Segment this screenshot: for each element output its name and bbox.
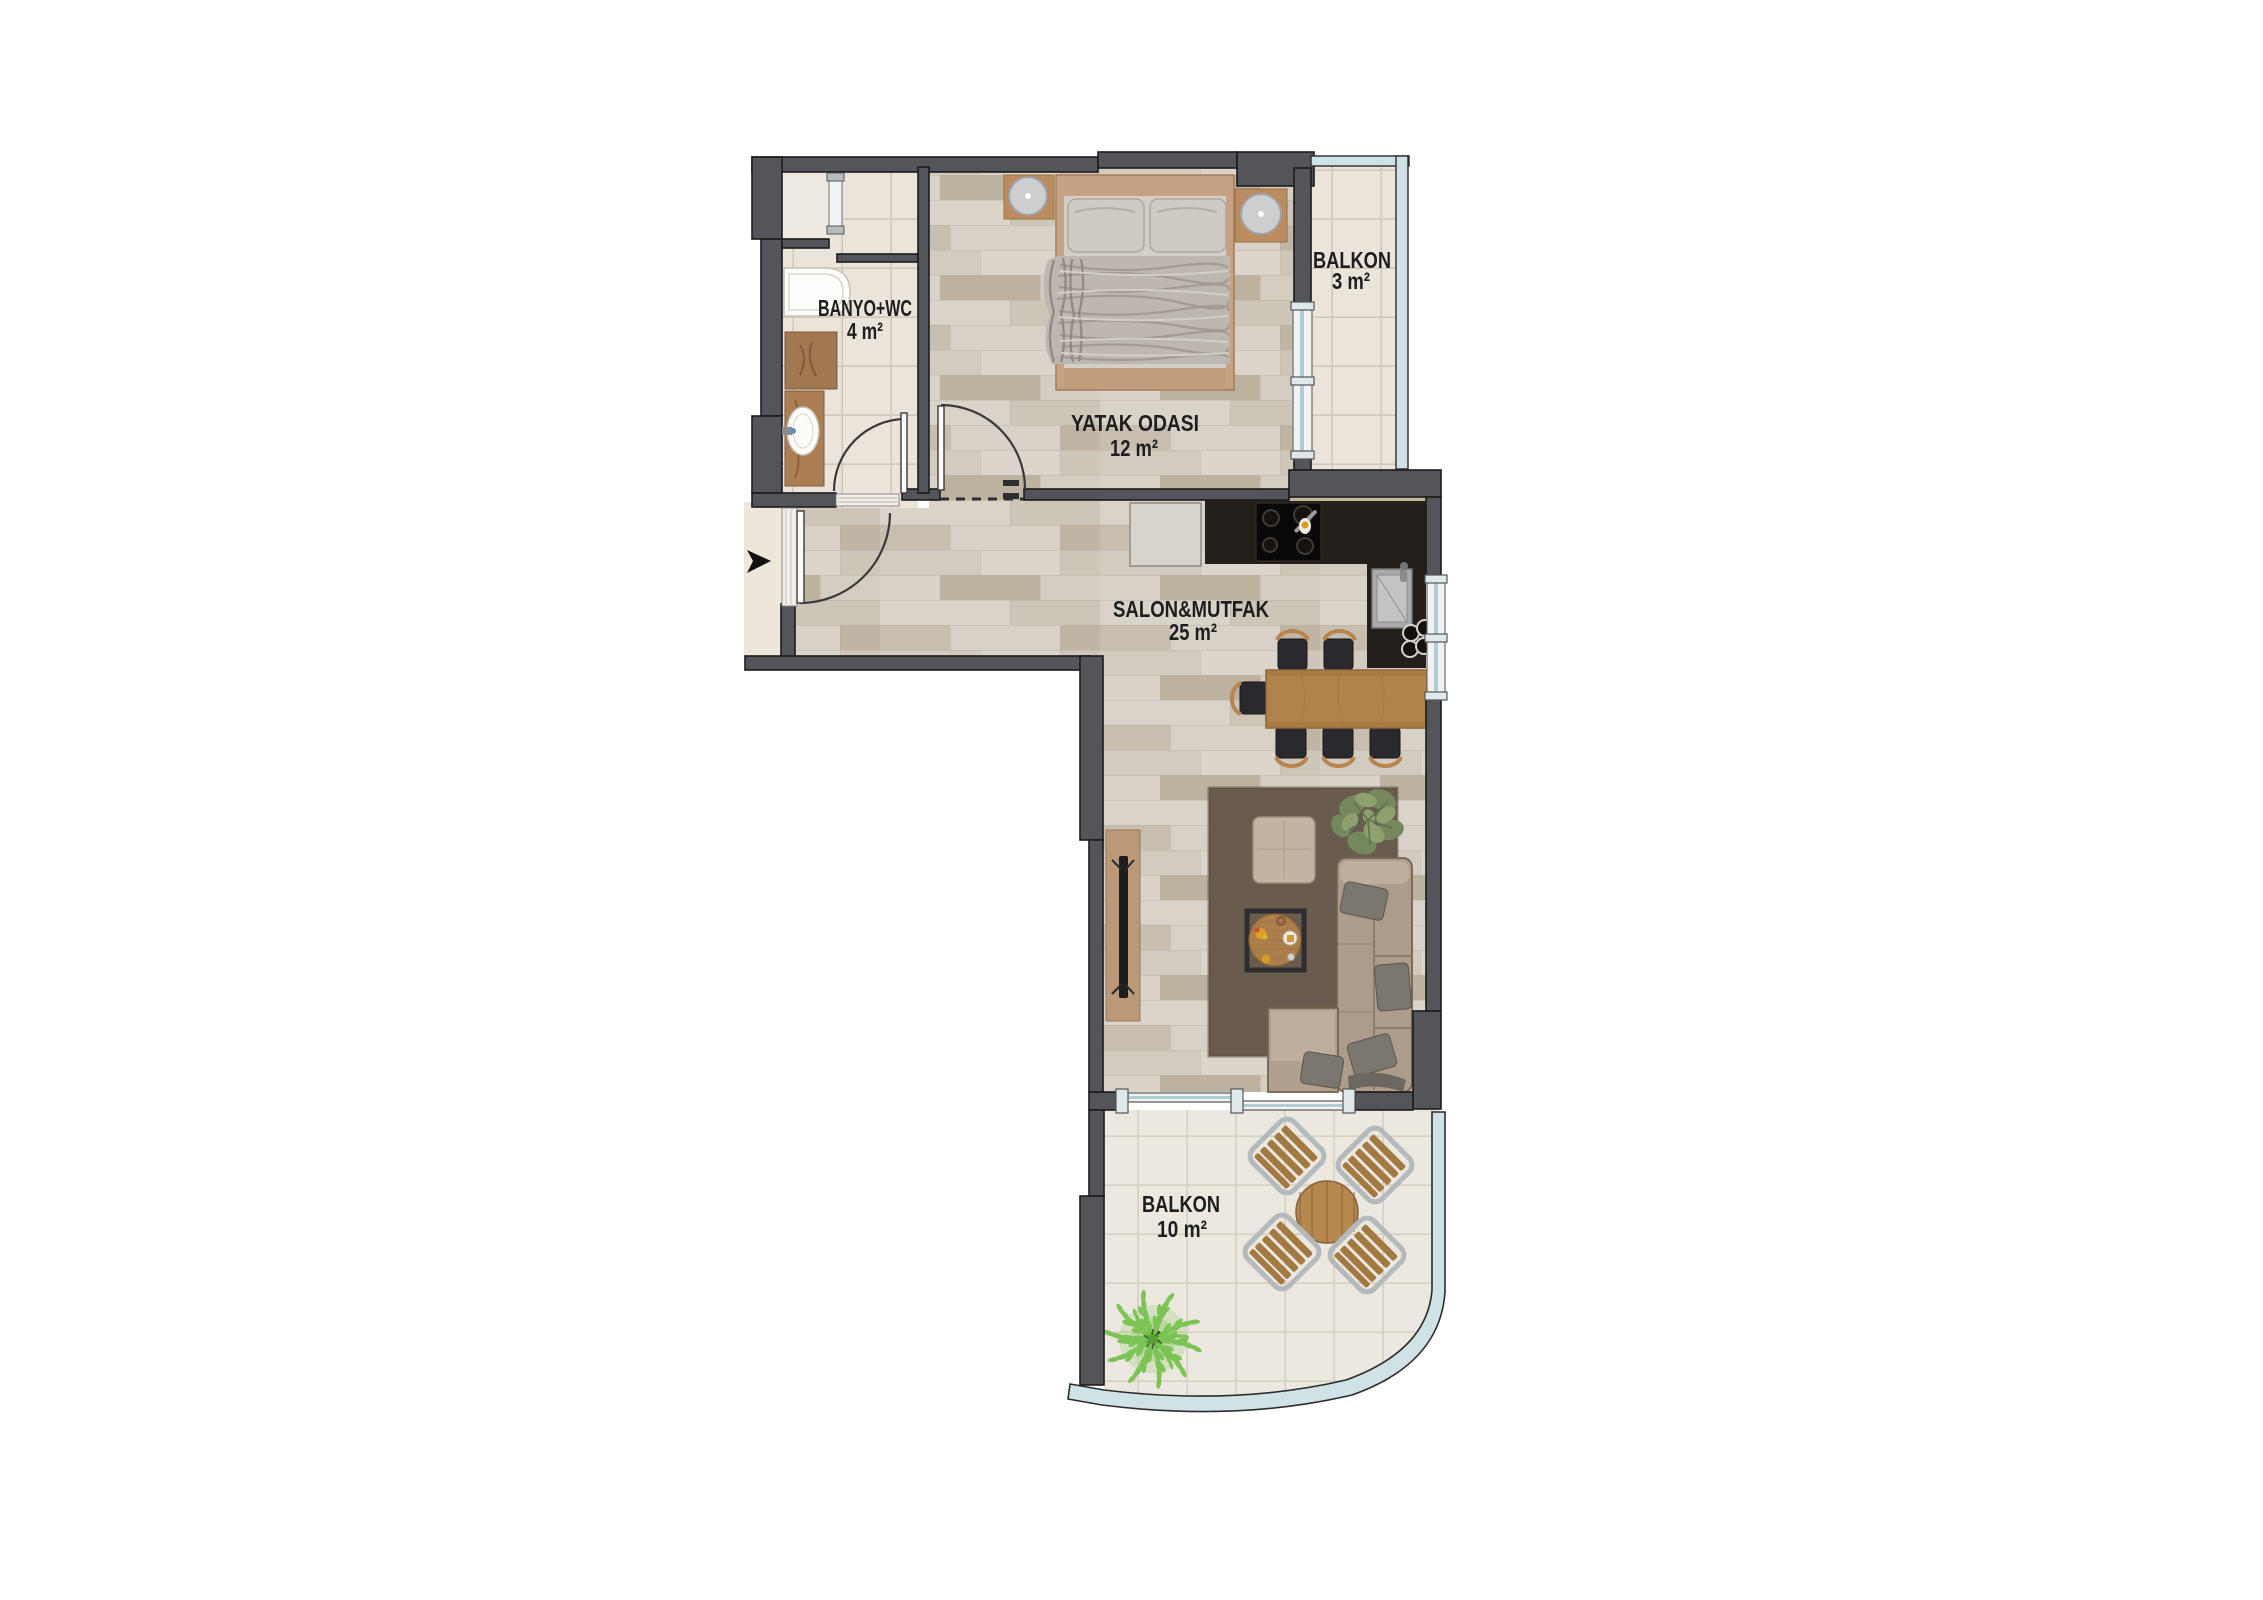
svg-text:BALKON: BALKON bbox=[1142, 1191, 1220, 1217]
svg-text:3 m²: 3 m² bbox=[1332, 268, 1370, 294]
svg-text:25 m²: 25 m² bbox=[1169, 619, 1217, 645]
svg-text:YATAK ODASI: YATAK ODASI bbox=[1071, 410, 1199, 436]
svg-text:12 m²: 12 m² bbox=[1110, 435, 1158, 461]
svg-text:4 m²: 4 m² bbox=[847, 318, 883, 344]
svg-text:10 m²: 10 m² bbox=[1157, 1216, 1207, 1242]
